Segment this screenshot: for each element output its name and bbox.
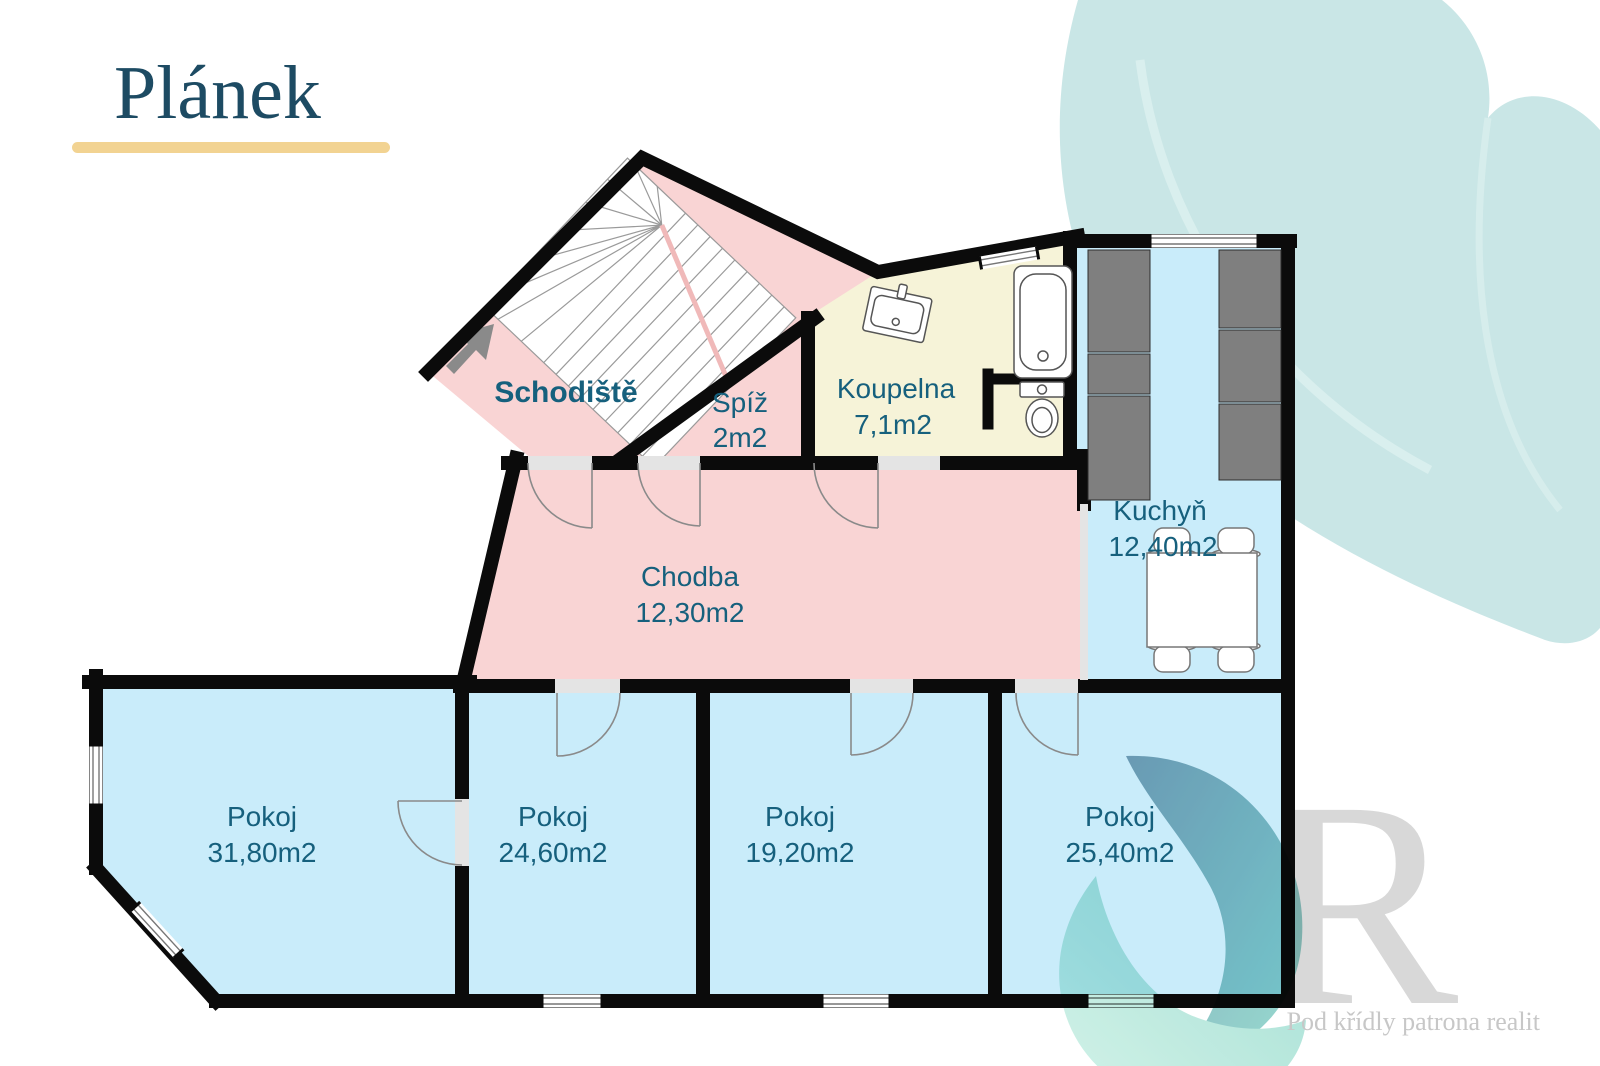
label-pokoj-2-area: 24,60m2 <box>499 837 608 868</box>
label-pokoj-2: Pokoj <box>518 801 588 832</box>
label-chodba: Chodba <box>641 561 740 592</box>
title-underline <box>72 142 390 153</box>
page-title: Plánek <box>114 51 321 135</box>
label-koupelna: Koupelna <box>837 373 956 404</box>
label-spiz-area: 2m2 <box>713 422 767 453</box>
window-pokoj-3 <box>822 995 890 1008</box>
brand-tagline: Pod křídly patrona realit <box>1287 1007 1541 1036</box>
dining-table-icon <box>1147 553 1257 647</box>
room-floor-chodba <box>458 458 1082 685</box>
label-pokoj-4-area: 25,40m2 <box>1066 837 1175 868</box>
label-pokoj-3: Pokoj <box>765 801 835 832</box>
bathtub-icon <box>1014 266 1072 378</box>
label-pokoj-3-area: 19,20m2 <box>746 837 855 868</box>
label-pokoj-1: Pokoj <box>227 801 297 832</box>
window-pokoj-2 <box>542 995 602 1008</box>
label-schodiste: Schodiště <box>494 376 637 409</box>
window-kuchyn <box>1150 235 1258 248</box>
label-pokoj-4: Pokoj <box>1085 801 1155 832</box>
label-koupelna-area: 7,1m2 <box>854 409 932 440</box>
label-spiz: Spíž <box>712 387 768 418</box>
floorplan-page: R <box>0 0 1600 1066</box>
label-kuchyn-area: 12,40m2 <box>1109 531 1218 562</box>
label-pokoj-1-area: 31,80m2 <box>208 837 317 868</box>
label-chodba-area: 12,30m2 <box>636 597 745 628</box>
window-pokoj-1-left <box>90 745 103 805</box>
label-kuchyn: Kuchyň <box>1113 495 1206 526</box>
